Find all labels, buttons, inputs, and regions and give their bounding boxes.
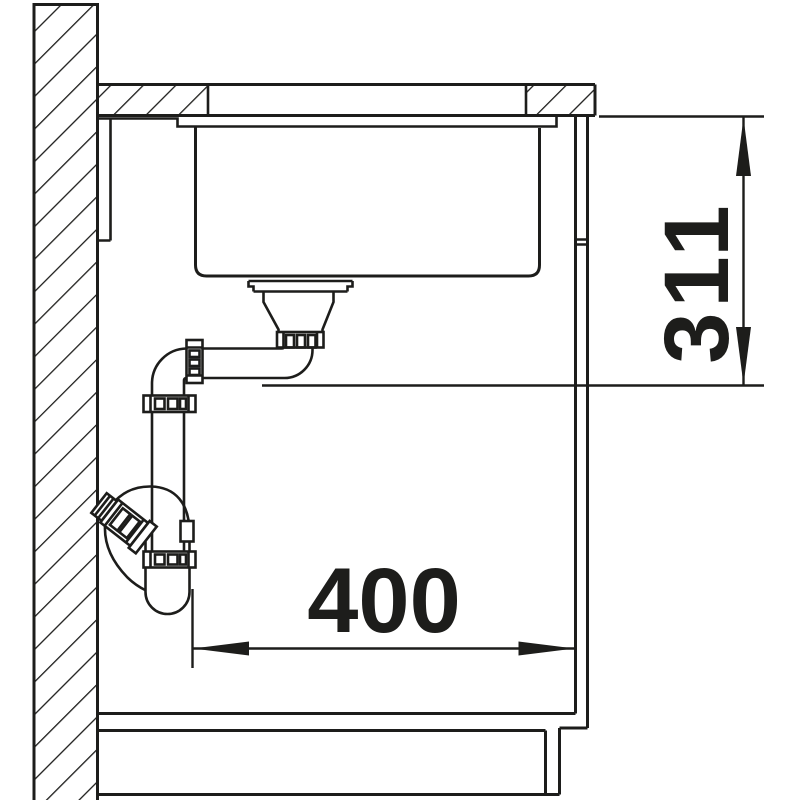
dimension-height: 311 (262, 117, 764, 386)
elbow-outer (152, 349, 187, 396)
countertop-hatch-right (526, 86, 595, 114)
diagram-canvas: 311 400 (0, 0, 800, 800)
cabinet (98, 116, 589, 795)
strainer-locknut (277, 332, 324, 348)
drain-strainer (249, 281, 353, 348)
countertop (98, 85, 596, 116)
dimension-width: 400 (193, 550, 575, 668)
pipe-top (203, 348, 284, 349)
countertop-hatch-left (98, 86, 209, 114)
arrowhead-left (193, 642, 249, 656)
elbow-nut (187, 340, 203, 383)
trap-stub (181, 521, 194, 542)
sink-bowl (98, 117, 557, 276)
arrowhead-right (519, 642, 575, 656)
trap-tube (146, 568, 190, 615)
width-dimension-label: 400 (307, 550, 461, 652)
trap-union-nut (144, 552, 196, 568)
height-dimension-label: 311 (646, 200, 748, 363)
drop-pipe (152, 412, 184, 552)
wall-section (34, 5, 98, 800)
pipe-bottom (203, 348, 313, 379)
vertical-pipe-nut (144, 396, 196, 413)
trap-siphon (89, 486, 196, 614)
sink-installation-diagram: 311 400 (0, 0, 800, 800)
waste-pipe (144, 340, 313, 552)
wall-batten (98, 119, 111, 241)
arrowhead-up (736, 118, 751, 176)
